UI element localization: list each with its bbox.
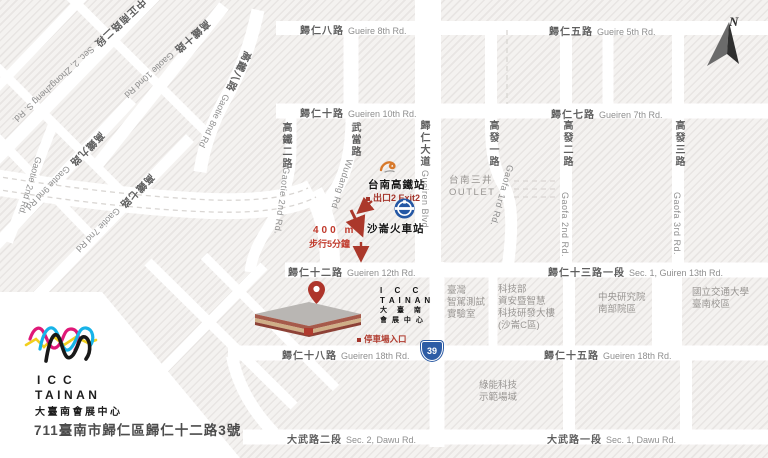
- nctu-label: 國立交通大學 臺南校區: [692, 287, 749, 311]
- road-label-gueire-8: 歸仁八路 Gueire 8th Rd.: [300, 22, 407, 37]
- most-building-label: 科技部 資安暨智慧 科技研發大樓 (沙崙C區): [498, 284, 555, 332]
- road-label-dawu-2: 大武路二段 Sec. 2, Dawu Rd.: [287, 431, 416, 446]
- walk-duration-label: 步行5分鐘: [309, 237, 350, 250]
- road-label-gueiren-10: 歸仁十路 Gueiren 10th Rd.: [300, 105, 417, 120]
- road-label-gaofa-1-zh: 高發一路: [485, 120, 500, 168]
- icc-lockup-line2: T A I N A N: [380, 296, 431, 306]
- icc-lockup-line3: 大 臺 南: [380, 306, 431, 316]
- road-label-gaofa-2-en: Gaofa 2nd Rd.: [560, 192, 570, 257]
- road-label-dawu-1: 大武路一段 Sec. 1, Dawu Rd.: [547, 431, 676, 446]
- exit-bullet: [366, 197, 370, 201]
- road-label-gueiren-15: 歸仁十五路 Gueiren 18th Rd.: [544, 347, 672, 362]
- hsr-station-label: 台南高鐵站: [368, 177, 426, 192]
- venue-address: 711臺南市歸仁區歸仁十二路3號: [34, 419, 241, 439]
- compass-n-label: N: [729, 14, 738, 30]
- road-label-gueiren-12: 歸仁十二路 Gueiren 12th Rd.: [288, 264, 416, 279]
- sinica-label: 中央研究院 南部院區: [598, 292, 646, 316]
- green-energy-label: 綠能科技 示範場域: [479, 380, 517, 404]
- outlet-label: 台南三井 OUTLET: [449, 175, 495, 199]
- road-label-wudang-zh: 武當路: [347, 122, 362, 158]
- icc-building-illustration: [251, 299, 365, 344]
- road-label-gueiren-7: 歸仁七路 Gueiren 7th Rd.: [551, 106, 663, 121]
- brand-line2: TAINAN: [35, 388, 100, 402]
- road-label-gaofa-3-en: Gaofa 3rd Rd.: [672, 192, 682, 255]
- tra-logo-icon: [394, 198, 415, 224]
- walk-distance-label: 400 m: [313, 225, 356, 236]
- icc-brand-waves-logo: [24, 315, 104, 378]
- road-label-gueire-5: 歸仁五路 Gueire 5th Rd.: [549, 23, 656, 38]
- road-label-guiren-13: 歸仁十三路一段 Sec. 1, Guiren 13th Rd.: [548, 264, 723, 279]
- car-lab-label: 臺灣 智駕測試 實驗室: [447, 285, 485, 321]
- icc-tainan-access-map: 歸仁八路 Gueire 8th Rd. 歸仁五路 Gueire 5th Rd. …: [0, 0, 768, 458]
- brand-subtitle: 大臺南會展中心: [35, 403, 123, 418]
- icc-lockup-line1: I C C: [380, 286, 431, 296]
- compass: N: [698, 14, 748, 77]
- road-label-gaofa-3-zh: 高發三路: [671, 120, 686, 168]
- icc-lockup-line4: 會 展 中 心: [380, 316, 431, 326]
- road-label-gueiren-18: 歸仁十八路 Gueiren 18th Rd.: [282, 347, 410, 362]
- road-label-gaofa-2-zh: 高發二路: [559, 120, 574, 168]
- thsr-logo-icon: [379, 160, 398, 179]
- road-label-gueiren-blvd-zh: 歸仁大道: [416, 120, 431, 168]
- icc-map-lockup: I C C T A I N A N 大 臺 南 會 展 中 心: [380, 286, 431, 326]
- road-label-gaotie-2-zh: 高鐵二路: [278, 122, 293, 170]
- north-arrow-icon: [698, 14, 748, 72]
